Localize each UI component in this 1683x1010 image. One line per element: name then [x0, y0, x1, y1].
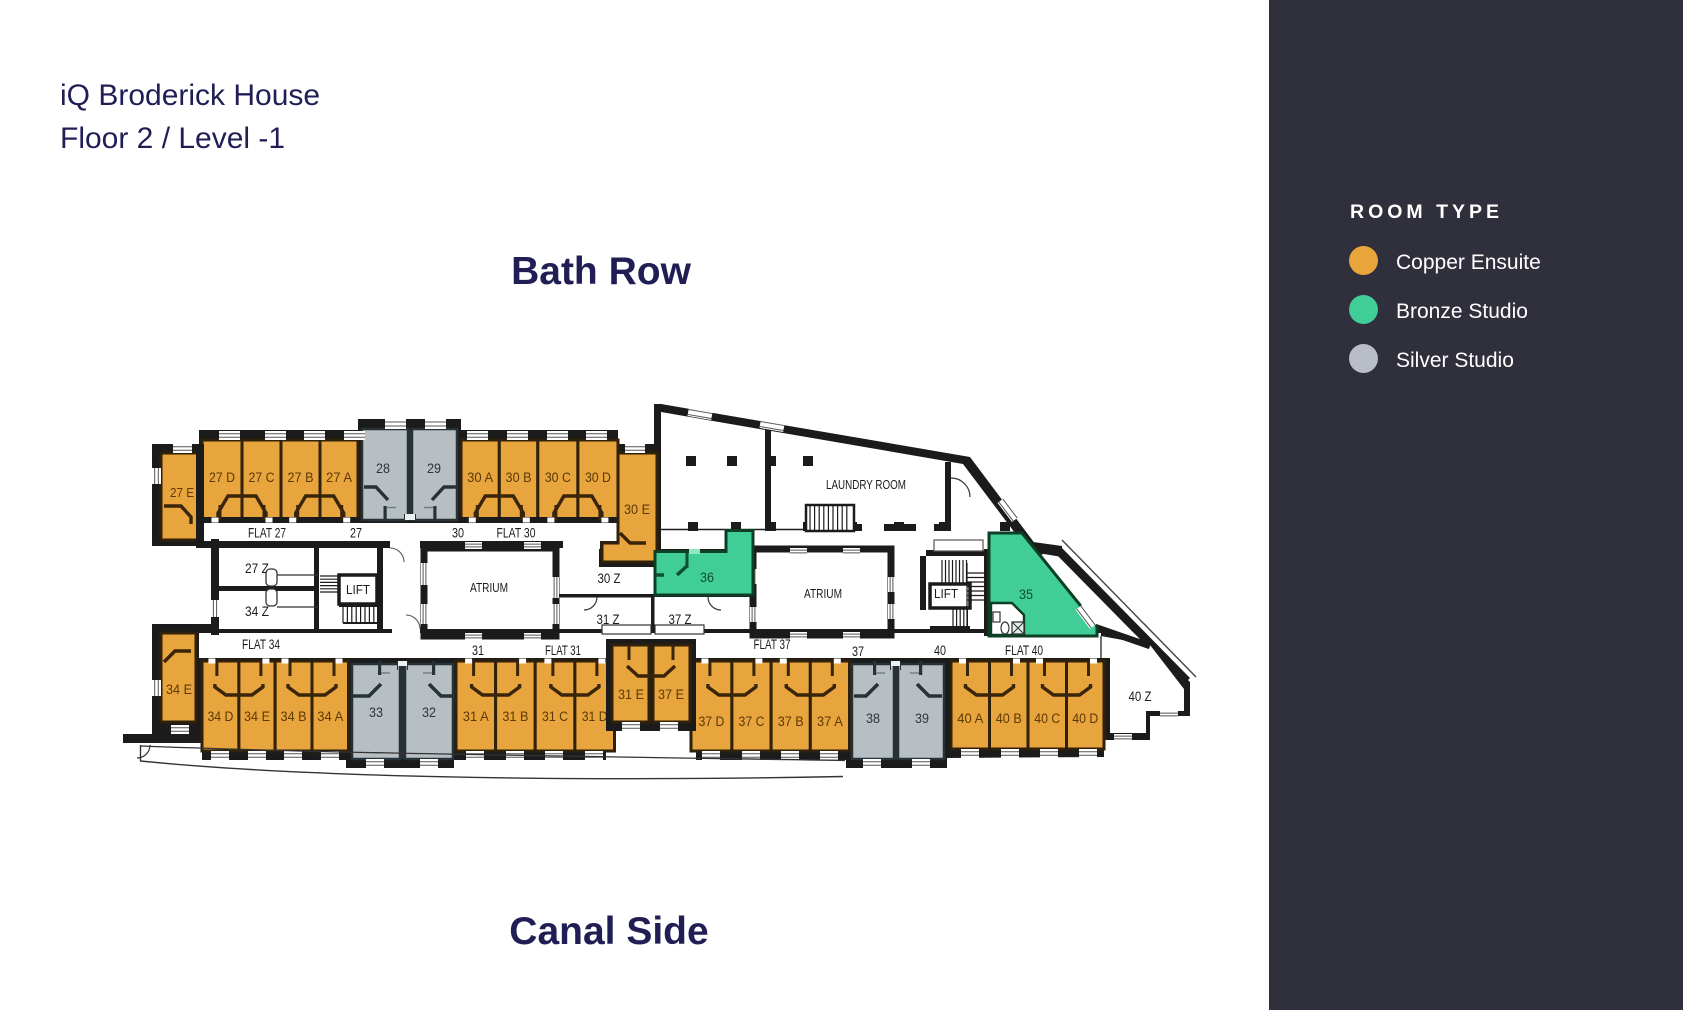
- svg-text:27: 27: [350, 525, 362, 541]
- svg-text:27 A: 27 A: [326, 470, 352, 485]
- svg-text:FLAT 37: FLAT 37: [754, 636, 791, 652]
- svg-text:40 D: 40 D: [1072, 711, 1098, 726]
- svg-text:34 D: 34 D: [207, 709, 233, 724]
- svg-text:33: 33: [369, 705, 383, 720]
- svg-text:40 B: 40 B: [996, 711, 1022, 726]
- svg-text:29: 29: [427, 461, 441, 476]
- svg-text:34 A: 34 A: [317, 709, 343, 724]
- svg-text:37 E: 37 E: [658, 687, 684, 702]
- svg-text:34 E: 34 E: [244, 709, 270, 724]
- svg-text:31: 31: [472, 642, 484, 658]
- svg-text:30 A: 30 A: [467, 470, 493, 485]
- svg-text:30 B: 30 B: [506, 470, 532, 485]
- svg-text:28: 28: [376, 461, 390, 476]
- svg-text:30 Z: 30 Z: [598, 571, 621, 586]
- svg-text:LAUNDRY ROOM: LAUNDRY ROOM: [826, 477, 906, 492]
- svg-text:37 A: 37 A: [817, 714, 843, 729]
- svg-text:FLAT 27: FLAT 27: [248, 525, 286, 541]
- svg-text:FLAT 30: FLAT 30: [497, 525, 536, 541]
- svg-text:37: 37: [852, 643, 864, 659]
- svg-text:30 C: 30 C: [545, 470, 571, 485]
- svg-text:31 D: 31 D: [582, 709, 608, 724]
- svg-text:30 D: 30 D: [585, 470, 611, 485]
- svg-text:39: 39: [915, 711, 929, 726]
- svg-text:30 E: 30 E: [624, 502, 650, 517]
- svg-text:27 C: 27 C: [249, 470, 275, 485]
- svg-text:40: 40: [934, 642, 946, 658]
- svg-text:40 A: 40 A: [957, 711, 983, 726]
- svg-text:31 B: 31 B: [502, 709, 528, 724]
- svg-text:ATRIUM: ATRIUM: [804, 586, 842, 601]
- svg-text:38: 38: [866, 711, 880, 726]
- svg-text:37 D: 37 D: [698, 714, 724, 729]
- svg-text:FLAT 31: FLAT 31: [545, 642, 581, 658]
- svg-text:31 A: 31 A: [463, 709, 489, 724]
- svg-text:37 B: 37 B: [778, 714, 804, 729]
- svg-text:LIFT: LIFT: [346, 583, 370, 597]
- svg-text:37 C: 37 C: [739, 714, 765, 729]
- svg-text:40 Z: 40 Z: [1129, 689, 1152, 704]
- svg-text:32: 32: [422, 705, 436, 720]
- svg-text:27 E: 27 E: [170, 485, 194, 500]
- svg-text:40 C: 40 C: [1034, 711, 1060, 726]
- svg-text:ATRIUM: ATRIUM: [470, 580, 508, 595]
- svg-text:FLAT 40: FLAT 40: [1005, 642, 1043, 658]
- svg-text:31 E: 31 E: [618, 687, 644, 702]
- svg-text:27 B: 27 B: [288, 470, 314, 485]
- svg-text:34 Z: 34 Z: [245, 604, 269, 619]
- svg-text:30: 30: [452, 525, 464, 541]
- svg-text:34 B: 34 B: [281, 709, 307, 724]
- svg-text:LIFT: LIFT: [934, 587, 958, 601]
- svg-text:FLAT 34: FLAT 34: [242, 636, 280, 652]
- svg-text:36: 36: [700, 570, 714, 585]
- svg-text:35: 35: [1019, 587, 1033, 602]
- svg-text:31 C: 31 C: [542, 709, 568, 724]
- svg-text:34 E: 34 E: [166, 682, 192, 697]
- svg-text:27 D: 27 D: [209, 470, 235, 485]
